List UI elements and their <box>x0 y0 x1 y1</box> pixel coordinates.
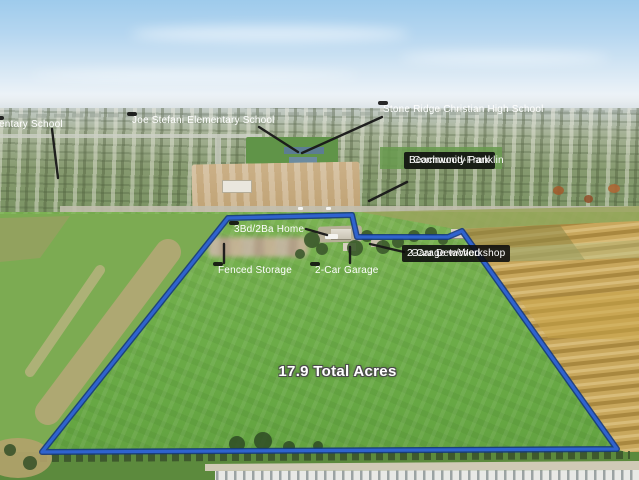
label-text: Joe Stefani Elementary School <box>132 114 275 127</box>
pointer-entary-school <box>52 129 58 178</box>
left-farm-strips <box>0 214 228 452</box>
label-joe-stefani-elementary: Joe Stefani Elementary School <box>127 112 137 116</box>
label-text: 2-Car Garage <box>315 264 379 277</box>
label-stone-ridge-high-school: Stone Ridge Christian High School <box>378 101 388 105</box>
label-elementary-school-partial: entary School <box>0 116 4 120</box>
pointer-joe-stefani <box>259 127 298 152</box>
pointer-community-park <box>369 182 407 201</box>
label-text: Fenced Storage <box>218 264 292 277</box>
label-text: Stone Ridge Christian High School <box>383 103 544 116</box>
aerial-property-photo: entary School Joe Stefani Elementary Sch… <box>0 0 639 480</box>
label-text: 3Bd/2Ba Home <box>234 223 304 236</box>
label-home: 3Bd/2Ba Home <box>229 221 239 225</box>
scene-overlay <box>0 0 639 480</box>
greenhouses <box>215 470 639 480</box>
label-community-park: Beachwood-Franklin Community Park <box>404 152 495 169</box>
label-text: 2-Car Detached <box>407 247 480 260</box>
label-text: Beachwood-Franklin <box>409 154 504 167</box>
pointer-stone-ridge <box>302 117 382 153</box>
label-detached-garage: 2-Car Detached Garage w/Workshop <box>402 245 510 262</box>
label-fenced-storage: Fenced Storage <box>213 262 223 266</box>
label-two-car-garage: 2-Car Garage <box>310 262 320 266</box>
total-acreage-text: 17.9 Total Acres <box>250 363 425 380</box>
label-text: entary School <box>0 118 63 131</box>
